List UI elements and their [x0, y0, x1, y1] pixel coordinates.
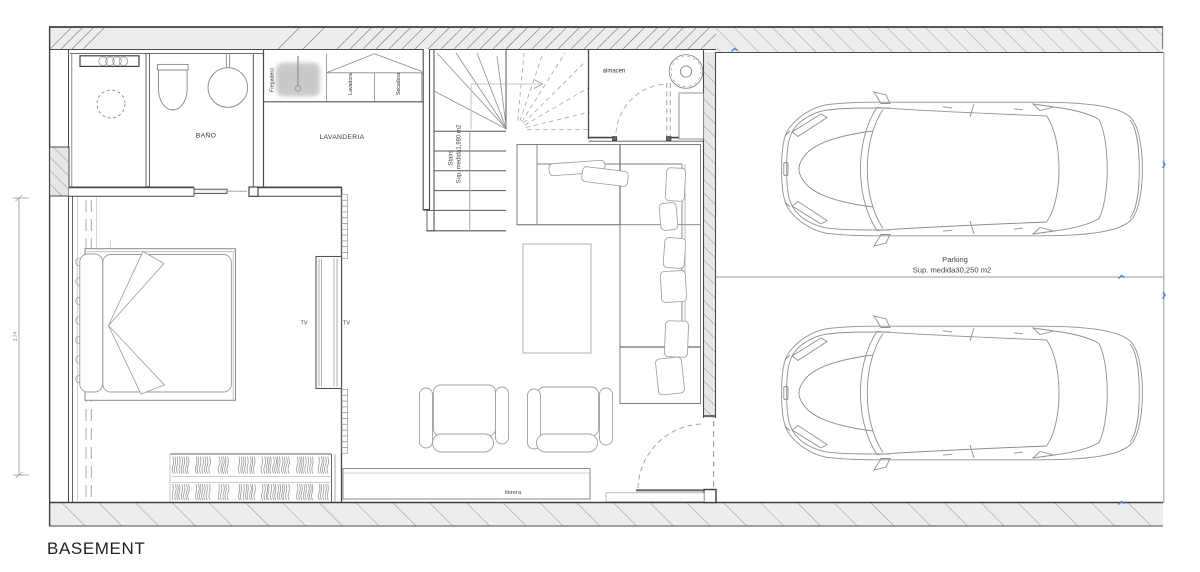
svg-text:Parking: Parking: [942, 255, 968, 264]
svg-text:librera: librera: [505, 490, 522, 496]
svg-text:3.74: 3.74: [13, 331, 19, 341]
svg-text:TV: TV: [301, 321, 308, 327]
svg-text:Stairs: Stairs: [449, 150, 455, 165]
svg-text:Secadora: Secadora: [396, 73, 402, 95]
svg-text:Lavadora: Lavadora: [348, 73, 354, 95]
svg-text:BASEMENT: BASEMENT: [47, 539, 145, 558]
svg-text:Sup. medida1,980 m2: Sup. medida1,980 m2: [457, 124, 463, 183]
svg-text:BAÑO: BAÑO: [196, 131, 216, 140]
svg-text:LAVANDERIA: LAVANDERIA: [319, 134, 364, 141]
svg-text:almacen: almacen: [603, 69, 626, 75]
svg-text:TV: TV: [343, 321, 350, 327]
svg-text:Sup. medida30,250 m2: Sup. medida30,250 m2: [913, 266, 992, 275]
svg-text:Fregadero: Fregadero: [270, 68, 276, 92]
